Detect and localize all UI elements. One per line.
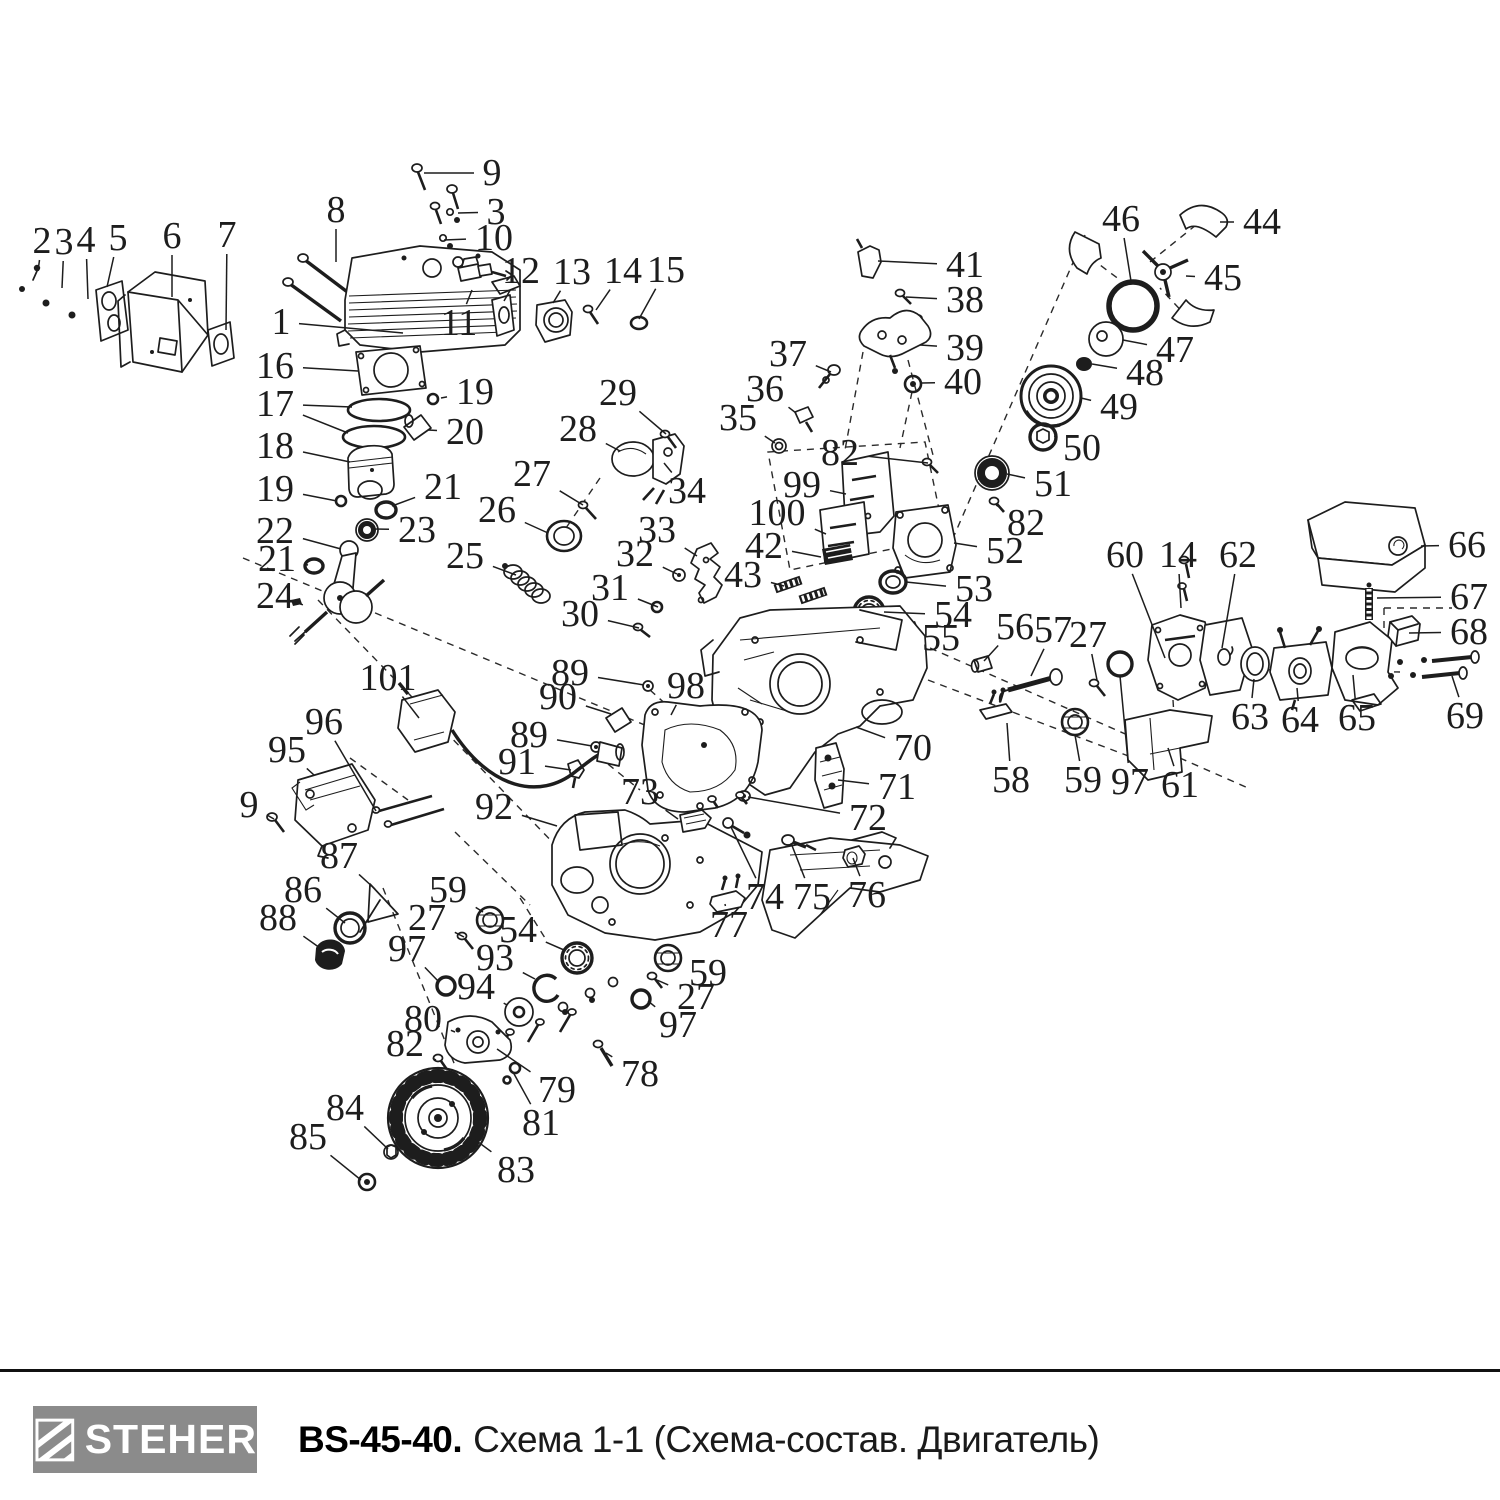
callout-number: 55 xyxy=(922,617,960,659)
part-buffer-59d xyxy=(655,945,681,971)
callout-number: 101 xyxy=(360,657,417,699)
part-ring-97a xyxy=(1108,652,1132,676)
leader-line xyxy=(303,452,350,462)
footer-divider xyxy=(0,1369,1500,1372)
leader-line xyxy=(497,1049,531,1072)
leader-line xyxy=(504,1003,507,1005)
callout-number: 49 xyxy=(1100,386,1138,428)
part-seal-53 xyxy=(880,571,906,593)
callout-number: 91 xyxy=(498,741,536,783)
leader-line xyxy=(392,497,415,506)
leader-line xyxy=(639,411,666,434)
leader-line xyxy=(792,551,821,557)
callout-number: 9 xyxy=(483,152,502,194)
part-bolts-69 xyxy=(1388,651,1479,679)
callout-number: 69 xyxy=(1446,695,1484,737)
callout-number: 12 xyxy=(502,250,540,292)
callout-number: 41 xyxy=(946,244,984,286)
leader-line xyxy=(303,368,358,371)
part-circlip-93 xyxy=(534,975,558,1001)
exploded-view-canvas: 2345678931011112131415161719201819212223… xyxy=(0,0,1500,1500)
leader-line xyxy=(303,415,348,433)
part-bolt-78 xyxy=(594,1041,613,1067)
leader-line xyxy=(1081,398,1091,400)
leader-line xyxy=(1123,340,1147,345)
callout-number: 97 xyxy=(659,1004,697,1046)
callout-number: 92 xyxy=(475,786,513,828)
page-title: Схема 1-1 (Схема-состав. Двигатель) xyxy=(473,1419,1099,1461)
part-carburetor-64 xyxy=(1270,626,1332,710)
part-spring-67 xyxy=(1367,583,1372,621)
leader-line xyxy=(906,582,946,586)
callout-number: 26 xyxy=(478,489,516,531)
callout-number: 23 xyxy=(398,509,436,551)
part-buffer-59b xyxy=(1062,709,1088,735)
leader-line xyxy=(107,257,114,287)
brand-logo: STEHER xyxy=(33,1406,257,1473)
part-bolts-8 xyxy=(283,254,354,321)
part-crankshaft-22 xyxy=(290,541,384,644)
leader-line xyxy=(560,491,583,505)
part-nut-35 xyxy=(772,439,786,453)
part-bushing-56 xyxy=(972,656,993,672)
callout-number: 25 xyxy=(446,535,484,577)
callout-number: 73 xyxy=(621,771,659,813)
callout-number: 4 xyxy=(77,219,96,261)
callout-number: 46 xyxy=(1102,198,1140,240)
part-elbow-41 xyxy=(857,239,881,278)
callout-number: 27 xyxy=(1069,614,1107,656)
part-circlip-19l xyxy=(336,496,346,506)
callout-number: 3 xyxy=(55,221,74,263)
part-flange-63 xyxy=(1241,647,1269,681)
leader-line xyxy=(546,942,564,950)
leader-line xyxy=(1007,474,1025,478)
callout-number: 88 xyxy=(259,897,297,939)
leader-line xyxy=(557,740,592,746)
part-cap-76 xyxy=(843,846,865,867)
brand-name: STEHER xyxy=(85,1416,257,1463)
leader-line xyxy=(425,967,439,982)
callout-number: 96 xyxy=(305,701,343,743)
callout-number: 21 xyxy=(424,466,462,508)
model-number: BS-45-40. xyxy=(298,1419,462,1461)
callout-number: 72 xyxy=(849,797,887,839)
callout-number: 20 xyxy=(446,411,484,453)
callout-number: 82 xyxy=(1007,502,1045,544)
leader-line xyxy=(444,239,466,240)
callout-number: 27 xyxy=(513,453,551,495)
callout-number: 66 xyxy=(1448,524,1486,566)
footer-bar: STEHER BS-45-40. Схема 1-1 (Схема-состав… xyxy=(0,1400,1500,1490)
leader-line xyxy=(303,936,320,948)
callout-number: 29 xyxy=(599,372,637,414)
callout-number: 60 xyxy=(1106,534,1144,576)
callout-number: 95 xyxy=(268,729,306,771)
part-washer-50 xyxy=(1030,424,1056,450)
brand-logo-icon xyxy=(33,1416,77,1464)
part-piston-pin-20 xyxy=(404,415,431,440)
part-bracket-39 xyxy=(859,310,930,374)
part-gasket-16 xyxy=(356,346,426,395)
leader-line xyxy=(856,727,885,738)
part-cap-88 xyxy=(315,939,345,969)
callout-number: 100 xyxy=(749,492,806,534)
leader-line xyxy=(303,405,352,407)
part-pawl-plate-79 xyxy=(445,1016,511,1063)
leader-line xyxy=(954,543,977,547)
callout-number: 58 xyxy=(992,759,1030,801)
callout-number: 84 xyxy=(326,1087,364,1129)
leader-line xyxy=(522,815,557,826)
leader-line xyxy=(305,564,308,565)
callout-number: 45 xyxy=(1204,257,1242,299)
leader-line xyxy=(1054,436,1056,437)
part-ring-97c xyxy=(632,990,650,1008)
leader-line xyxy=(62,261,63,288)
part-air-box-cover-66 xyxy=(1308,502,1425,592)
part-washer-94 xyxy=(505,998,533,1026)
parts-diagram-page: 2345678931011112131415161719201819212223… xyxy=(0,0,1500,1500)
part-circlip-19r xyxy=(428,394,438,404)
leader-line xyxy=(1186,276,1195,277)
leader-line xyxy=(1031,649,1044,676)
callout-number: 64 xyxy=(1281,699,1319,741)
part-clutch-drum-49 xyxy=(1021,366,1081,426)
callout-number: 34 xyxy=(668,470,706,512)
leader-line xyxy=(359,874,375,889)
callout-number: 14 xyxy=(1159,534,1197,576)
part-bearing-51 xyxy=(975,456,1009,490)
callout-number: 78 xyxy=(621,1053,659,1095)
leader-line xyxy=(428,430,437,431)
part-crankshaft-group xyxy=(290,502,596,645)
callout-number: 11 xyxy=(441,302,478,344)
callout-number: 8 xyxy=(327,189,346,231)
callout-number: 17 xyxy=(256,383,294,425)
callout-number: 21 xyxy=(258,538,296,580)
callout-number: 2 xyxy=(33,220,52,262)
page-caption: BS-45-40. Схема 1-1 (Схема-состав. Двига… xyxy=(298,1410,1099,1470)
part-pinion-48 xyxy=(1076,357,1092,371)
callout-number: 1 xyxy=(272,301,291,343)
callout-number: 19 xyxy=(256,468,294,510)
callout-number: 74 xyxy=(746,876,784,918)
leader-line xyxy=(513,1072,531,1104)
leader-line xyxy=(596,290,610,310)
leader-line xyxy=(441,397,447,398)
callout-number: 9 xyxy=(240,784,259,826)
part-washer-47 xyxy=(1089,322,1123,356)
callout-number: 6 xyxy=(163,215,182,257)
callout-number: 18 xyxy=(256,425,294,467)
part-gasket-5 xyxy=(96,281,128,341)
callout-number: 76 xyxy=(848,874,886,916)
callout-number: 14 xyxy=(604,250,642,292)
leader-line xyxy=(878,261,937,264)
part-bracket-33 xyxy=(691,543,722,603)
callout-number: 15 xyxy=(647,249,685,291)
callout-number: 75 xyxy=(793,876,831,918)
part-ring-86 xyxy=(335,913,365,943)
part-piston-18 xyxy=(348,446,394,499)
callout-number: 33 xyxy=(638,509,676,551)
leader-line xyxy=(458,213,478,214)
part-screws-96 xyxy=(373,796,445,827)
callout-number: 59 xyxy=(689,952,727,994)
callout-number: 28 xyxy=(559,408,597,450)
callout-number: 77 xyxy=(710,904,748,946)
leader-line xyxy=(598,678,644,686)
callout-number: 65 xyxy=(1338,697,1376,739)
callout-number: 44 xyxy=(1243,201,1281,243)
leader-line xyxy=(639,289,656,319)
leader-line xyxy=(303,539,341,549)
leader-line xyxy=(1092,364,1117,368)
leader-line xyxy=(1409,633,1441,634)
part-seal-26 xyxy=(547,521,581,551)
part-gasket-12 xyxy=(492,295,514,336)
part-pin-90 xyxy=(606,708,631,732)
callout-number: 94 xyxy=(457,966,495,1008)
leader-line xyxy=(1075,735,1080,761)
part-worm-spring-25 xyxy=(502,563,550,603)
callout-number: 63 xyxy=(1231,696,1269,738)
part-washer-21b xyxy=(305,559,323,573)
part-cover-52 xyxy=(893,505,956,578)
leader-line xyxy=(1179,574,1181,608)
callout-number: 82 xyxy=(821,432,859,474)
part-oring-46 xyxy=(1109,282,1157,330)
part-muffler-6 xyxy=(118,272,208,372)
callout-number: 81 xyxy=(522,1102,560,1144)
leader-line xyxy=(920,345,937,346)
leader-line xyxy=(906,297,937,299)
part-springs-43 xyxy=(775,580,826,600)
leader-line xyxy=(1452,676,1459,697)
part-flywheel-83 xyxy=(388,1068,488,1168)
leader-line xyxy=(303,494,337,501)
callout-number: 5 xyxy=(109,217,128,259)
callout-number: 13 xyxy=(553,251,591,293)
callout-number: 59 xyxy=(429,869,467,911)
callout-number: 57 xyxy=(1034,609,1072,651)
callout-number: 90 xyxy=(539,676,577,718)
callout-number: 98 xyxy=(667,665,705,707)
callout-number: 43 xyxy=(724,554,762,596)
part-bracket-58 xyxy=(980,688,1012,720)
part-bearing-23 xyxy=(356,519,378,541)
part-piston-ring-17a xyxy=(348,399,410,421)
leader-line xyxy=(1092,654,1097,680)
callout-number: 56 xyxy=(996,606,1034,648)
leader-line xyxy=(525,523,548,534)
part-nipple-36 xyxy=(795,407,813,432)
part-gasket-7 xyxy=(208,322,234,366)
callout-number: 40 xyxy=(944,361,982,403)
leader-line xyxy=(789,407,797,413)
callout-number: 37 xyxy=(769,333,807,375)
callout-number: 68 xyxy=(1450,611,1488,653)
part-tensioner-71 xyxy=(815,743,844,808)
callout-number: 61 xyxy=(1161,764,1199,806)
leader-line xyxy=(87,259,88,299)
part-washer-21a xyxy=(376,502,396,518)
callout-number: 62 xyxy=(1219,534,1257,576)
leader-line xyxy=(545,766,571,770)
part-bearing-54c xyxy=(562,943,592,973)
leader-line xyxy=(307,768,314,775)
callout-number: 24 xyxy=(256,575,294,617)
callout-number: 85 xyxy=(289,1116,327,1158)
callout-number: 87 xyxy=(320,835,358,877)
leader-line xyxy=(1007,723,1010,761)
part-screw-27b xyxy=(1090,680,1099,687)
callout-number: 51 xyxy=(1034,463,1072,505)
callout-number: 83 xyxy=(497,1149,535,1191)
callout-number: 19 xyxy=(456,371,494,413)
leader-line xyxy=(523,973,535,979)
callout-number: 70 xyxy=(894,727,932,769)
part-handle-bracket-74-77 xyxy=(762,832,928,938)
part-ring-97b xyxy=(437,977,455,995)
callout-number: 82 xyxy=(386,1023,424,1065)
callout-number: 59 xyxy=(1064,759,1102,801)
leader-line xyxy=(226,254,227,330)
leader-line xyxy=(1377,597,1441,598)
callout-number: 7 xyxy=(218,214,237,256)
callout-number: 54 xyxy=(499,909,537,951)
leader-line xyxy=(364,1126,388,1149)
leader-line xyxy=(765,436,775,443)
part-block-68 xyxy=(1388,616,1420,646)
leader-line xyxy=(331,1155,362,1180)
part-muffler-group xyxy=(19,265,234,372)
part-piston-ring-17b xyxy=(343,426,405,448)
part-rod-57 xyxy=(1000,669,1062,702)
callout-number: 97 xyxy=(1111,761,1149,803)
part-pump-diaphragm-28 xyxy=(612,442,654,476)
callout-number: 16 xyxy=(256,345,294,387)
leader-line xyxy=(1132,574,1165,658)
leader-line xyxy=(1124,238,1131,281)
part-washer-85 xyxy=(359,1174,375,1190)
part-flange-13 xyxy=(536,300,572,342)
